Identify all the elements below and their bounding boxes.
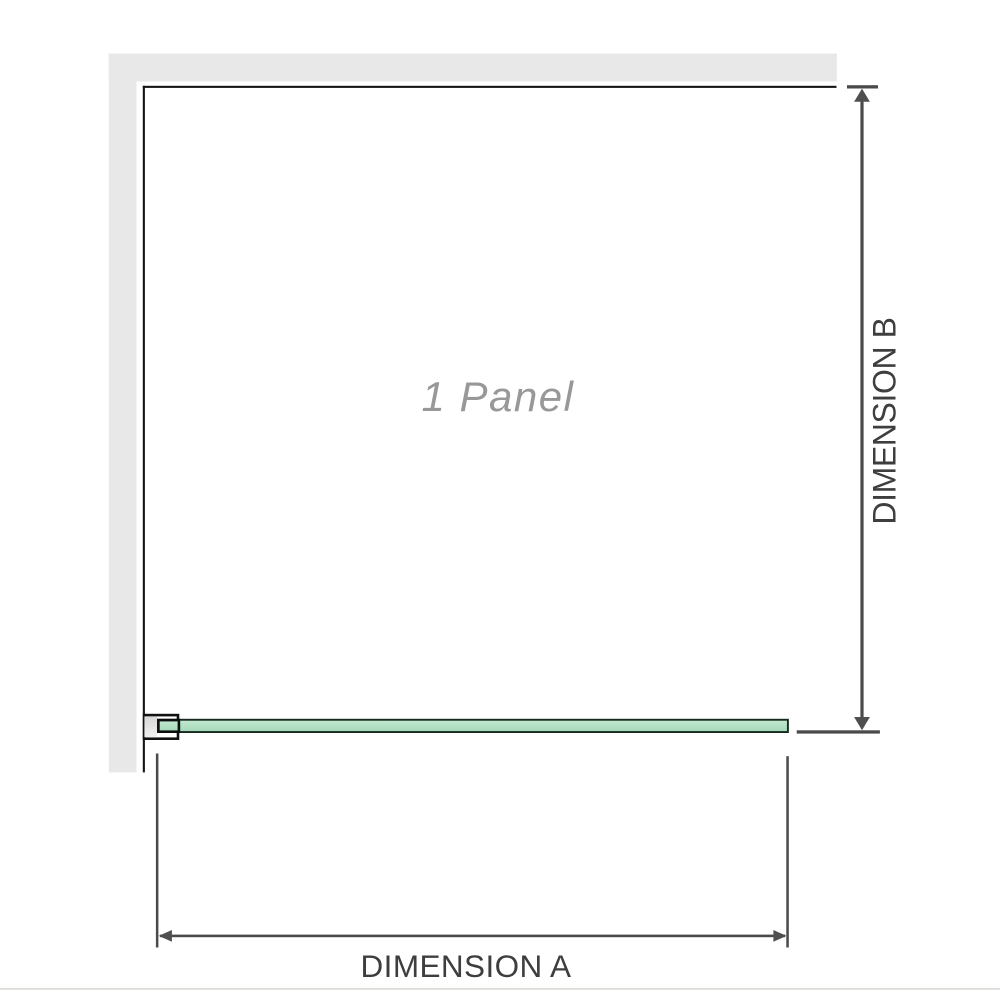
svg-text:DIMENSION B: DIMENSION B — [867, 317, 903, 524]
svg-text:DIMENSION A: DIMENSION A — [361, 948, 572, 984]
svg-text:1 Panel: 1 Panel — [422, 373, 575, 420]
